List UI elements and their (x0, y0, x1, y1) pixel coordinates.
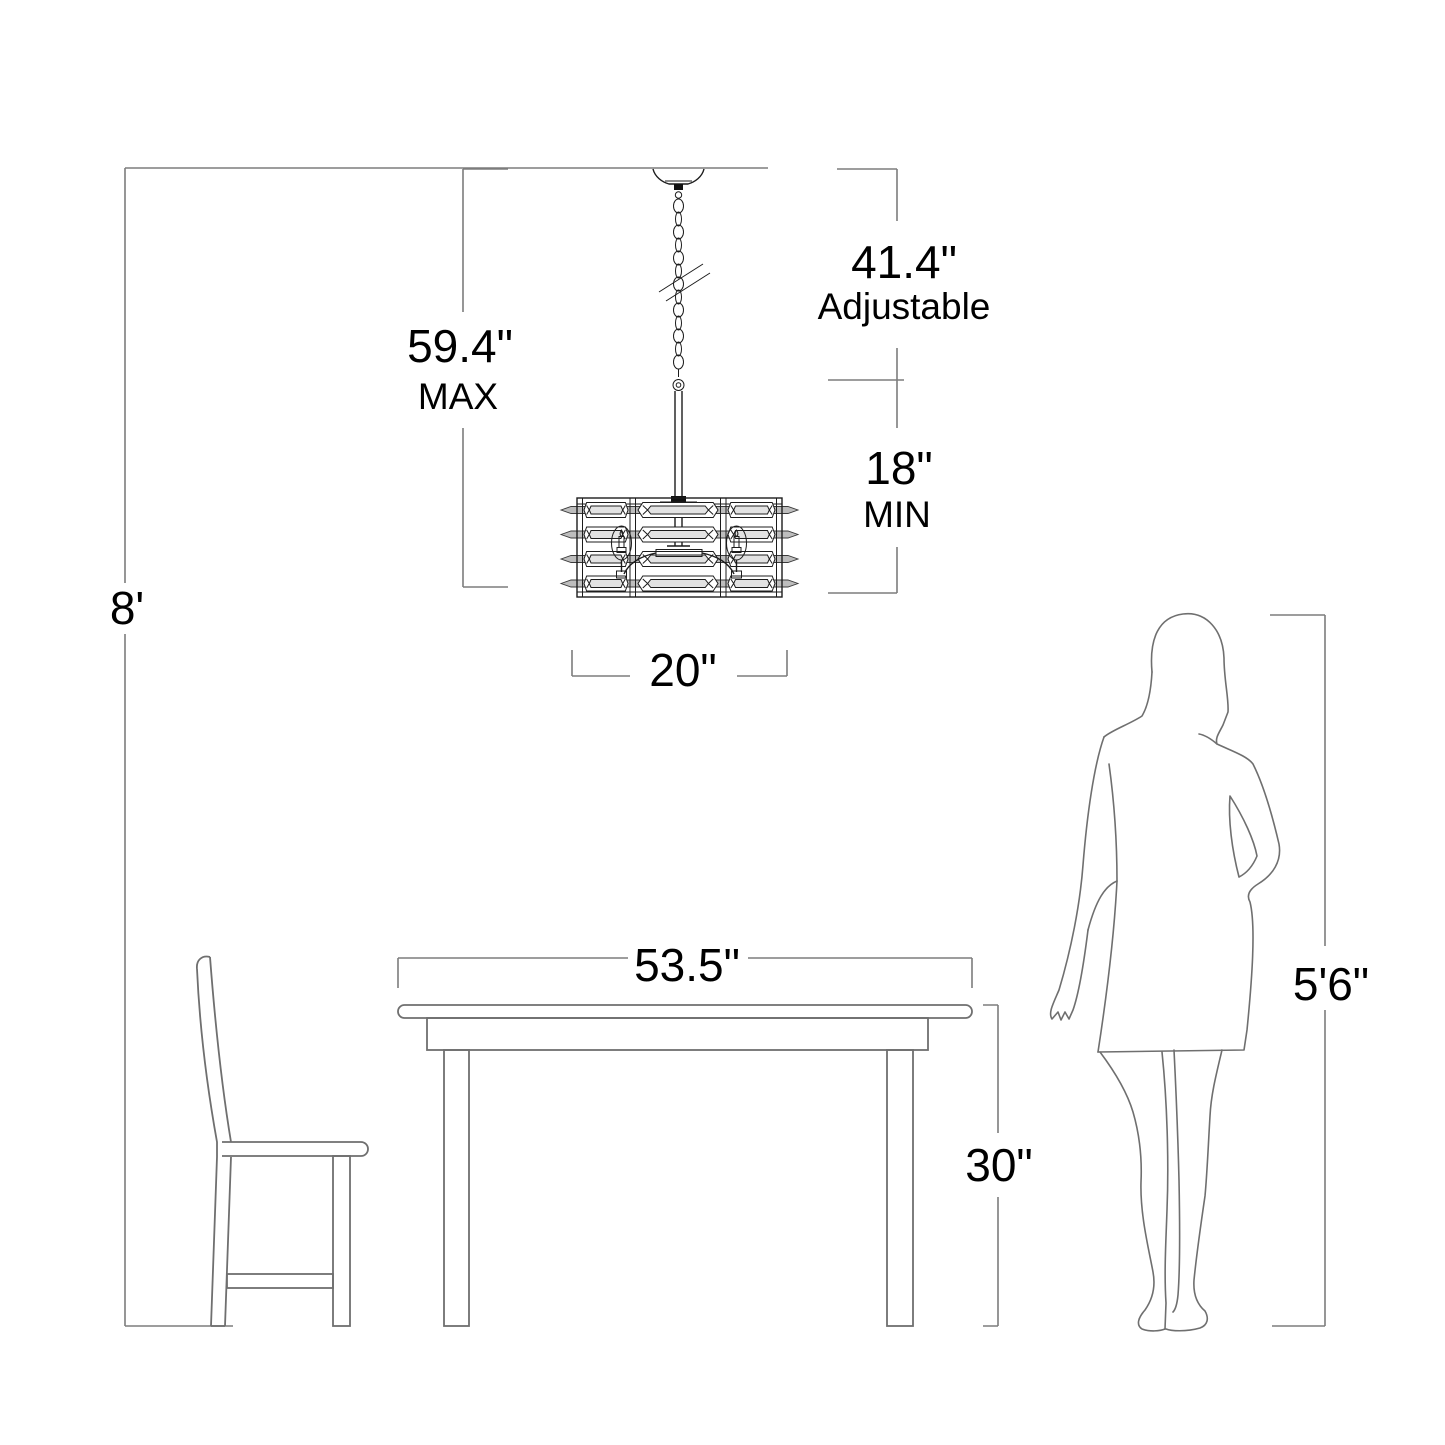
table-top (398, 1005, 972, 1018)
dimension-ceiling-height: 8' (110, 168, 233, 1326)
diagram-canvas: 8' 59.4" MAX 41.4" Adjustable 18" MIN (0, 0, 1445, 1445)
chair-seat (222, 1142, 368, 1156)
chain-break-icon (659, 264, 710, 301)
label-ceiling-height: 8' (110, 582, 144, 634)
chair-stretcher (227, 1274, 333, 1288)
label-fixture-width: 20" (649, 644, 717, 696)
dimension-adjustable-height: 41.4" Adjustable (818, 169, 991, 428)
dimension-table-width: 53.5" (398, 939, 972, 991)
label-min-word: MIN (863, 494, 931, 535)
label-max-value: 59.4" (407, 320, 513, 372)
dimension-max-height: 59.4" MAX (407, 169, 513, 587)
dimension-diagram: 8' 59.4" MAX 41.4" Adjustable 18" MIN (0, 0, 1445, 1445)
dimension-table-height: 30" (965, 1005, 1033, 1326)
dimension-min-height: 18" MIN (828, 442, 933, 593)
fixture-body (561, 498, 798, 597)
label-table-height: 30" (965, 1139, 1033, 1191)
canopy (653, 169, 704, 198)
chandelier (561, 169, 798, 597)
dimension-fixture-width: 20" (572, 644, 787, 696)
chain (674, 199, 684, 377)
label-max-word: MAX (418, 376, 498, 417)
dimension-person-height: 5'6" (1270, 615, 1369, 1326)
table-leg-right (887, 1050, 913, 1326)
label-adjustable-word: Adjustable (818, 286, 991, 327)
dining-table (398, 1005, 972, 1326)
label-person-height: 5'6" (1293, 958, 1369, 1010)
down-rod (660, 380, 697, 547)
table-leg-left (444, 1050, 469, 1326)
table-apron (427, 1018, 928, 1050)
dining-chair (197, 957, 368, 1326)
chair-front-leg (333, 1156, 350, 1326)
label-min-value: 18" (865, 442, 933, 494)
label-table-width: 53.5" (634, 939, 740, 991)
person-silhouette (1051, 614, 1280, 1331)
label-adjustable-value: 41.4" (851, 236, 957, 288)
